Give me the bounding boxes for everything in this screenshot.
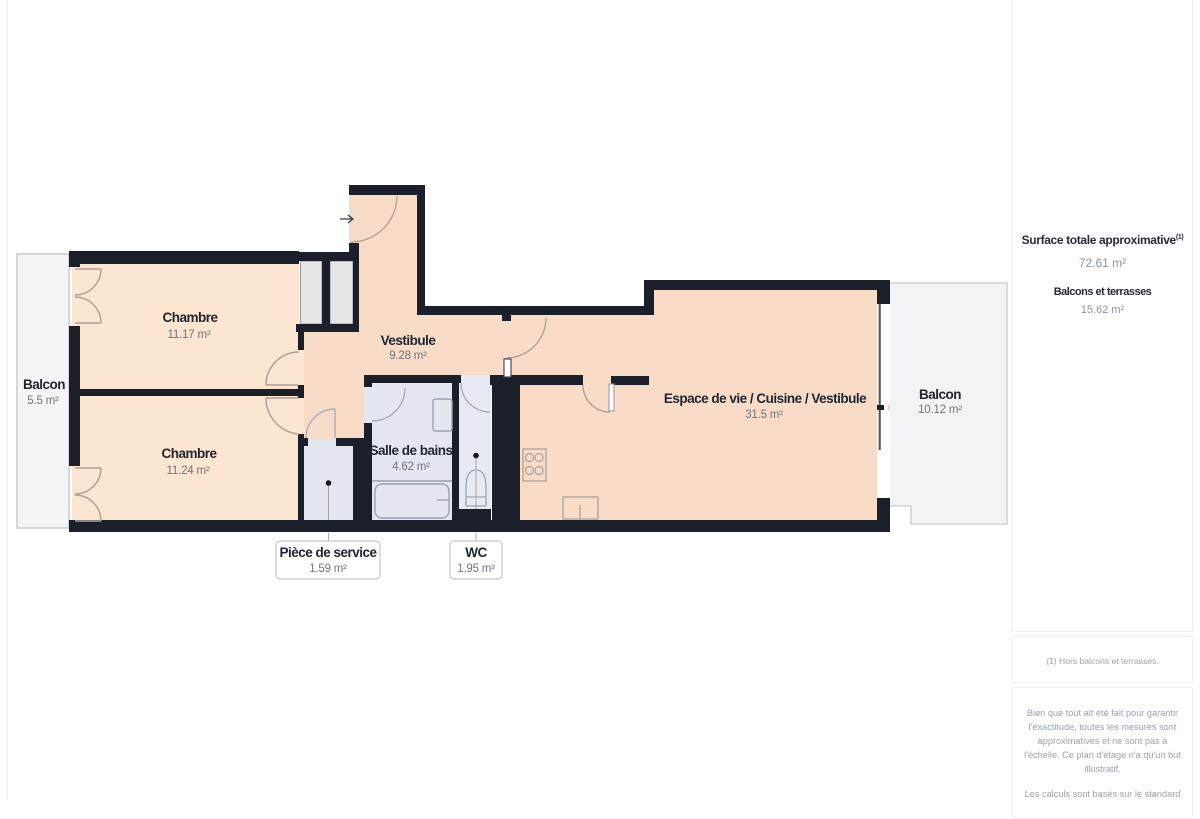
svg-text:9.28 m²: 9.28 m² <box>389 350 427 362</box>
svg-text:Salle de bains: Salle de bains <box>369 443 452 458</box>
svg-text:4.62 m²: 4.62 m² <box>392 461 430 473</box>
svg-text:5.5 m²: 5.5 m² <box>27 395 59 407</box>
svg-text:31.5 m²: 31.5 m² <box>745 409 783 421</box>
svg-text:1.95 m²: 1.95 m² <box>457 563 495 575</box>
svg-text:1.59 m²: 1.59 m² <box>309 563 347 575</box>
svg-text:Chambre: Chambre <box>161 446 217 461</box>
svg-text:11.17 m²: 11.17 m² <box>168 329 211 341</box>
svg-text:11.24 m²: 11.24 m² <box>167 465 210 477</box>
svg-text:Chambre: Chambre <box>162 310 218 325</box>
svg-text:Balcon: Balcon <box>23 377 65 392</box>
svg-text:Pièce de service: Pièce de service <box>279 545 377 560</box>
svg-text:Balcon: Balcon <box>919 387 961 402</box>
svg-text:10.12 m²: 10.12 m² <box>918 404 962 416</box>
svg-text:Espace de vie / Cuisine / Vest: Espace de vie / Cuisine / Vestibule <box>664 391 867 406</box>
svg-text:Vestibule: Vestibule <box>381 333 437 348</box>
svg-text:WC: WC <box>465 545 487 560</box>
